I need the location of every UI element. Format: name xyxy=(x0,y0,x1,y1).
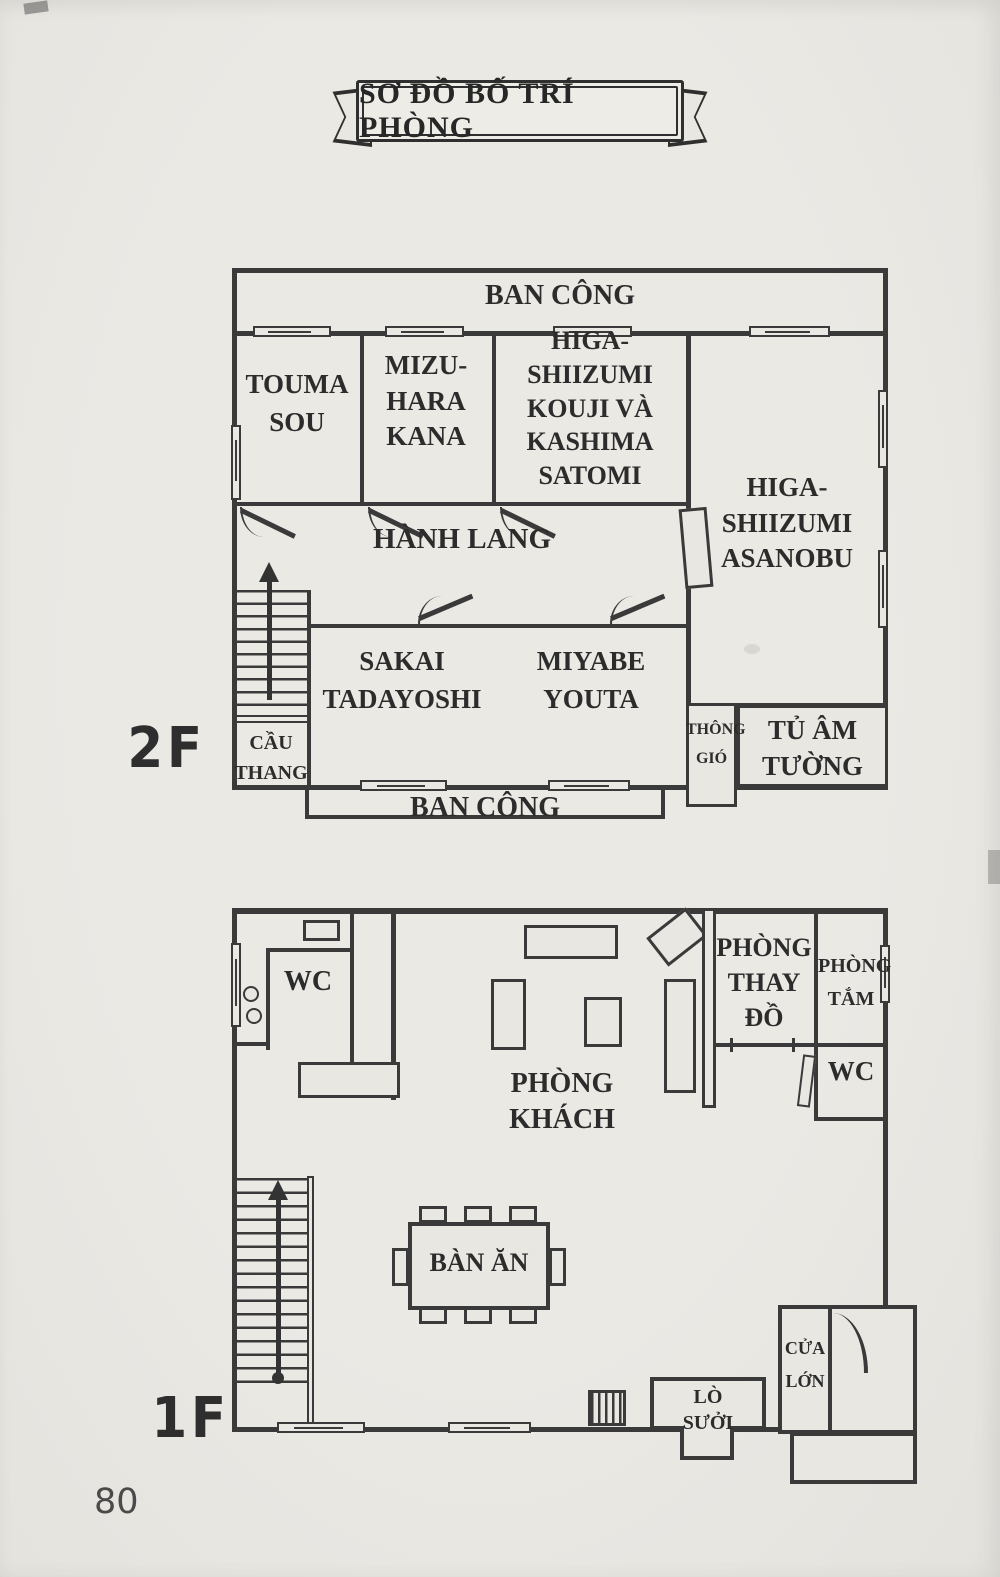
room-asanobu-label: HIGA- SHIIZUMI ASANOBU xyxy=(688,470,886,577)
chair xyxy=(392,1248,409,1286)
scanned-floorplan-page: SƠ ĐỒ BỐ TRÍ PHÒNG xyxy=(0,0,1000,1577)
stairs-up-arrowhead-icon xyxy=(268,1180,288,1200)
dining-table-label: BÀN ĂN xyxy=(408,1248,550,1278)
balcony-bottom-label: BAN CÔNG xyxy=(305,792,665,824)
sofa xyxy=(524,925,618,959)
sink-fixture xyxy=(303,920,340,941)
stair-landing-line xyxy=(232,715,311,723)
floor-label-1f: 1F xyxy=(151,1386,229,1451)
radiator xyxy=(588,1390,626,1426)
title-band: SƠ ĐỒ BỐ TRÍ PHÒNG xyxy=(356,80,684,142)
window-marker xyxy=(749,326,830,337)
toilet-fixture xyxy=(243,986,259,1002)
page-number: 80 xyxy=(94,1482,139,1522)
window-marker xyxy=(277,1422,365,1433)
balcony-top-label: BAN CÔNG xyxy=(232,280,888,312)
floor-plan-1f: WC PHÒNG KHÁCH PHÒNG THAY ĐỒ PHÒNG TẮM W… xyxy=(232,908,888,1432)
window-marker xyxy=(253,326,331,337)
wall-segment xyxy=(232,1042,270,1046)
vent-label: THÔNG GIÓ xyxy=(686,716,737,774)
window-marker xyxy=(231,943,241,1027)
living-room-label: PHÒNG KHÁCH xyxy=(457,1066,667,1139)
stairs-up-arrow-icon xyxy=(276,1198,281,1380)
fireplace-label: LÒ SƯỞI xyxy=(652,1384,764,1436)
wall-segment xyxy=(232,268,888,273)
wall-segment xyxy=(814,1117,888,1121)
stair-treads xyxy=(237,590,307,716)
floor-plan-2f: BAN CÔNG TOUMA SOU MIZU- HARA KANA HIGA-… xyxy=(232,268,888,790)
wall-segment xyxy=(266,948,352,952)
stair-treads xyxy=(237,1178,307,1388)
door-arc xyxy=(240,507,264,537)
chair xyxy=(419,1206,447,1223)
scan-artifact xyxy=(23,0,48,14)
wall-segment xyxy=(714,1043,888,1047)
wall-segment xyxy=(232,502,690,506)
door-jamb-tick xyxy=(730,1038,733,1052)
wall-closet-label: TỦ ÂM TƯỜNG xyxy=(739,712,886,785)
stairs-start-dot-icon xyxy=(272,1372,284,1384)
chair xyxy=(509,1206,537,1223)
stairs-up-arrow-icon xyxy=(267,580,272,700)
stair-rail xyxy=(307,1176,314,1429)
chair xyxy=(464,1206,492,1223)
window-marker xyxy=(360,780,447,791)
main-door-label: CỬA LỚN xyxy=(779,1332,831,1399)
wall-segment xyxy=(266,948,270,1050)
toilet-fixture xyxy=(246,1008,262,1024)
bathroom-label: PHÒNG TẮM xyxy=(818,950,884,1016)
window-marker xyxy=(548,780,630,791)
door-arc xyxy=(418,596,442,624)
room-touma-label: TOUMA SOU xyxy=(232,366,362,442)
door-jamb-tick xyxy=(792,1038,795,1052)
armchair xyxy=(491,979,526,1050)
page-title: SƠ ĐỒ BỐ TRÍ PHÒNG xyxy=(359,83,681,139)
thick-wall-outline xyxy=(298,1062,400,1098)
window-marker xyxy=(878,390,888,468)
room-sakai-label: SAKAI TADAYOSHI xyxy=(310,643,494,719)
stairs-label: CẦU THANG xyxy=(232,728,310,788)
wall-segment xyxy=(232,908,888,914)
entrance-porch-lower xyxy=(790,1432,917,1484)
tv-stand xyxy=(646,907,708,966)
door-arc xyxy=(610,596,634,624)
scan-artifact xyxy=(988,850,1000,884)
room-kouji-satomi-label: HIGA- SHIIZUMI KOUJI VÀ KASHIMA SATOMI xyxy=(492,324,688,493)
stairs-up-arrowhead-icon xyxy=(259,562,279,582)
wc-right-label: WC xyxy=(816,1056,886,1087)
window-marker xyxy=(448,1422,531,1433)
coffee-table xyxy=(584,997,622,1047)
changing-room-label: PHÒNG THAY ĐỒ xyxy=(712,930,816,1035)
sofa xyxy=(664,979,696,1093)
wall-segment xyxy=(307,624,690,628)
room-mizuhara-label: MIZU- HARA KANA xyxy=(358,348,494,455)
chair xyxy=(549,1248,566,1286)
window-marker xyxy=(385,326,464,337)
wc-left-label: WC xyxy=(260,966,356,998)
room-miyabe-label: MIYABE YOUTA xyxy=(494,643,688,719)
floor-label-2f: 2F xyxy=(127,716,205,781)
hallway-label: HÀNH LANG xyxy=(272,523,652,556)
